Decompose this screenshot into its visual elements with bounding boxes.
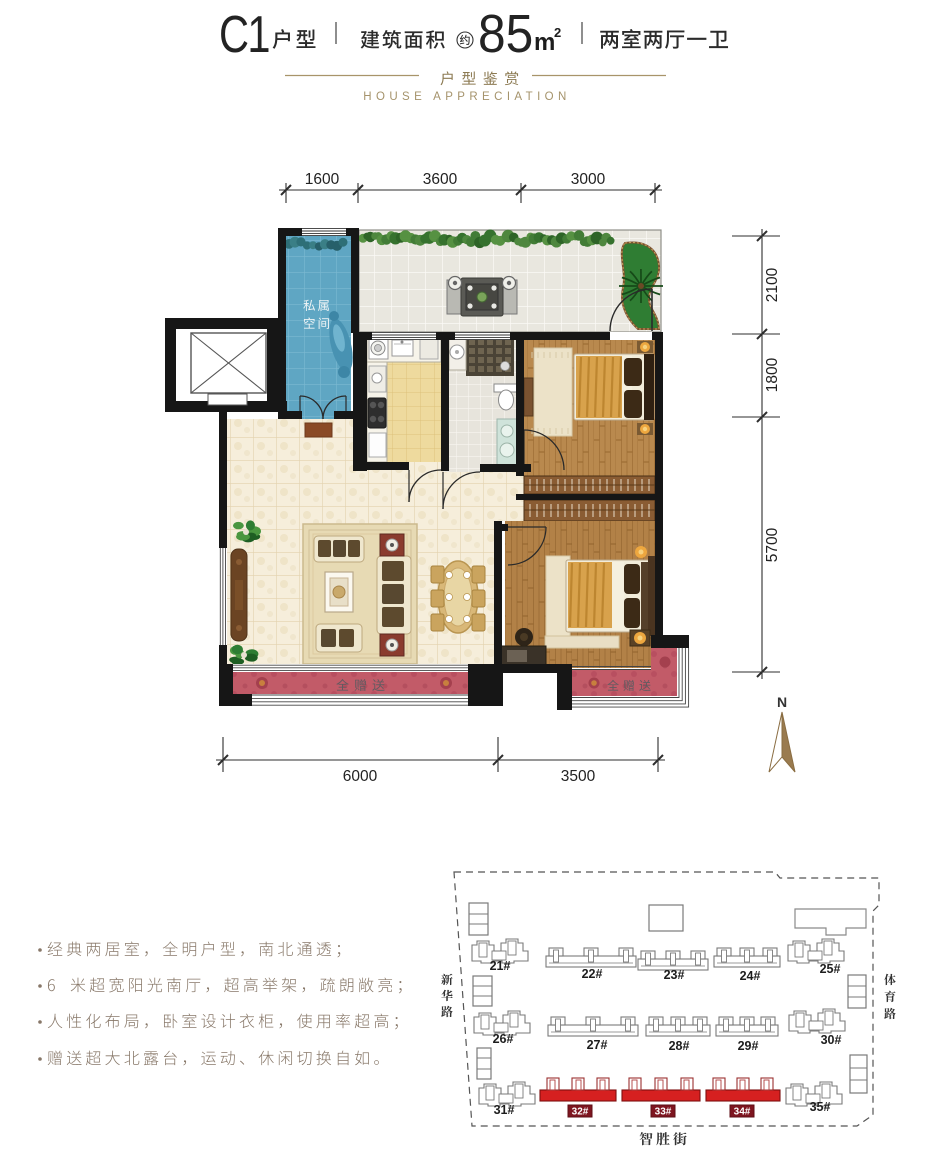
svg-text:35#: 35# — [810, 1100, 831, 1114]
svg-text:C1: C1 — [219, 5, 269, 64]
svg-text:27#: 27# — [587, 1038, 608, 1052]
svg-text:25#: 25# — [820, 962, 841, 976]
svg-text:24#: 24# — [740, 969, 761, 983]
svg-text:3000: 3000 — [571, 171, 606, 188]
svg-text:31#: 31# — [494, 1103, 515, 1117]
svg-text:32#: 32# — [572, 1107, 589, 1118]
svg-text:29#: 29# — [738, 1039, 759, 1053]
svg-text:HOUSE APPRECIATION: HOUSE APPRECIATION — [363, 91, 570, 103]
svg-text:N: N — [777, 694, 787, 710]
svg-text:85: 85 — [478, 3, 533, 63]
svg-text:30#: 30# — [821, 1033, 842, 1047]
svg-text:26#: 26# — [493, 1032, 514, 1046]
svg-text:1800: 1800 — [764, 357, 781, 392]
svg-text:22#: 22# — [582, 967, 603, 981]
svg-text:2100: 2100 — [764, 267, 781, 302]
svg-text:3600: 3600 — [423, 171, 458, 188]
svg-text:23#: 23# — [664, 968, 685, 982]
svg-text:m: m — [534, 29, 555, 56]
svg-text:2: 2 — [554, 25, 561, 40]
svg-text:21#: 21# — [490, 959, 511, 973]
svg-text:28#: 28# — [669, 1039, 690, 1053]
svg-text:34#: 34# — [734, 1107, 751, 1118]
svg-text:6000: 6000 — [343, 768, 378, 785]
svg-text:33#: 33# — [655, 1107, 672, 1118]
svg-text:5700: 5700 — [764, 527, 781, 562]
svg-text:3500: 3500 — [561, 768, 596, 785]
svg-text:1600: 1600 — [305, 171, 340, 188]
